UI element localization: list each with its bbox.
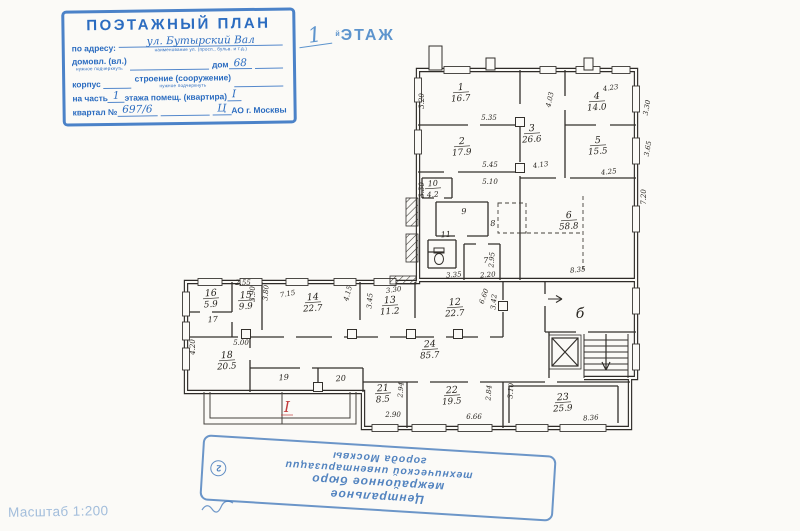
dimension-5.00: 5.00 bbox=[233, 339, 249, 347]
toilet-icon bbox=[434, 248, 444, 265]
dashed-lines bbox=[498, 196, 583, 272]
dimension-3.30: 3.30 bbox=[385, 285, 402, 295]
dimension-3.65: 3.65 bbox=[643, 140, 654, 157]
room-area-18: 20.5 bbox=[216, 361, 238, 372]
room-number-6: 6 bbox=[565, 210, 572, 221]
stamp-kvartal-row: квартал № 697/6 Ц АО г. Москвы bbox=[73, 103, 287, 117]
stamp-address-row: по адресу: ул. Бутырский Вал наименовани… bbox=[72, 34, 286, 54]
scale-note: Масштаб 1:200 bbox=[8, 503, 109, 520]
elevator-shaft bbox=[549, 335, 581, 369]
room-number-9: 9 bbox=[461, 207, 467, 216]
household-blank bbox=[130, 60, 209, 71]
stroenie-subcaption: нужное подчеркнуть bbox=[159, 82, 206, 88]
ink-squiggle bbox=[198, 498, 238, 516]
dimension-6.60: 6.60 bbox=[478, 287, 491, 305]
room-area-16: 5.9 bbox=[204, 300, 219, 311]
room-number-4: 4 bbox=[592, 91, 600, 102]
kvartal-value: 697/6 bbox=[117, 105, 157, 117]
stamp-house-row: домовл. (вл.) нужное подчеркнуть дом 68 bbox=[72, 53, 286, 71]
korpus-label: корпус bbox=[72, 79, 101, 89]
room-area-21: 8.5 bbox=[376, 395, 391, 406]
dimension-7.20: 7.20 bbox=[640, 189, 648, 205]
dimension-3.90: 3.90 bbox=[249, 286, 257, 302]
wall-posts bbox=[242, 118, 525, 392]
dimension-5.35: 5.35 bbox=[481, 114, 497, 122]
scanned-floor-plan-page: { "header_stamp": { "title": "ПОЭТАЖНЫЙ … bbox=[0, 0, 800, 531]
room-area-13: 11.2 bbox=[380, 306, 401, 317]
floor-part-value: 1 bbox=[108, 91, 125, 103]
floor-title: 1 й ЭТАЖ bbox=[298, 26, 395, 46]
kvartal-label: квартал № bbox=[73, 107, 118, 118]
room-area-1: 16.7 bbox=[451, 93, 472, 104]
stamp-border: ПОЭТАЖНЫЙ ПЛАН по адресу: ул. Бутырский … bbox=[61, 7, 297, 126]
room-area-6: 58.8 bbox=[559, 221, 580, 232]
room-number-5: 5 bbox=[594, 135, 601, 146]
dimension-2.90: 2.90 bbox=[384, 411, 401, 419]
room-area-23: 25.9 bbox=[552, 403, 574, 414]
floor-word: ЭТАЖ bbox=[341, 27, 395, 45]
room-number-16: 16 bbox=[204, 288, 217, 300]
room-area-3: 26.6 bbox=[521, 134, 543, 145]
apartment-label: этажа помещ. (квартира) bbox=[125, 91, 228, 102]
floor-number-handwritten: 1 bbox=[297, 24, 333, 48]
house-blank bbox=[255, 59, 283, 69]
house-number-value: 68 bbox=[229, 58, 253, 70]
dimension-4.25: 4.25 bbox=[600, 167, 618, 177]
room-area-2: 17.9 bbox=[452, 147, 473, 158]
part-label: на часть bbox=[72, 93, 108, 103]
room-number-2: 2 bbox=[457, 136, 465, 147]
dimension-3.10: 3.10 bbox=[506, 382, 515, 399]
dimension-8.36: 8.36 bbox=[583, 413, 600, 422]
dimension-4.20: 4.20 bbox=[189, 339, 197, 356]
zone-label-б: б bbox=[576, 306, 585, 322]
room-number-10: 10 bbox=[427, 179, 438, 189]
room-area-15: 9.9 bbox=[239, 302, 254, 313]
dimension-2.84: 2.84 bbox=[484, 385, 493, 402]
dimension-3.42: 3.42 bbox=[489, 293, 498, 310]
room-area-14: 22.7 bbox=[302, 303, 324, 314]
staircase bbox=[584, 334, 628, 378]
direction-arrow bbox=[548, 296, 562, 303]
stamp-title: ПОЭТАЖНЫЙ ПЛАН bbox=[71, 15, 285, 35]
stamp-part-row: на часть 1 этажа помещ. (квартира) I bbox=[72, 89, 286, 103]
room-number-13: 13 bbox=[383, 295, 396, 307]
address-label: по адресу: bbox=[72, 43, 116, 54]
room-number-1: 1 bbox=[457, 82, 464, 93]
dimension-5.10: 5.10 bbox=[482, 178, 498, 186]
dimension-4.13: 4.13 bbox=[531, 160, 549, 170]
dimension-3.20: 3.20 bbox=[418, 93, 426, 109]
dimension-4.23: 4.23 bbox=[601, 83, 619, 93]
dimension-4.03: 4.03 bbox=[544, 91, 555, 109]
dimension-2.20: 2.20 bbox=[479, 270, 497, 279]
dimension-3.80: 3.80 bbox=[261, 284, 270, 301]
room-number-8: 8 bbox=[490, 219, 496, 228]
bureau-stamp-number: 2 bbox=[210, 460, 227, 477]
room-area-10: 4.2 bbox=[426, 190, 440, 200]
dimension-2.55: 2.55 bbox=[234, 279, 251, 287]
section-mark-I: I bbox=[283, 398, 291, 416]
dimension-2.95: 2.95 bbox=[487, 251, 496, 269]
stroenie-blank bbox=[234, 76, 283, 87]
apartment-value: I bbox=[227, 89, 241, 101]
room-area-22: 19.5 bbox=[442, 396, 463, 407]
room-area-5: 15.5 bbox=[588, 146, 609, 157]
room-number-17: 17 bbox=[207, 315, 219, 325]
korpus-blank bbox=[104, 79, 132, 89]
room-number-14: 14 bbox=[306, 292, 319, 304]
dimension-3.30: 3.30 bbox=[418, 182, 426, 198]
dimension-6.66: 6.66 bbox=[466, 413, 482, 421]
dimension-8.35: 8.35 bbox=[570, 265, 587, 275]
stamp-building-row: корпус строение (сооружение) нужное подч… bbox=[72, 71, 286, 89]
dimension-4.15: 4.15 bbox=[342, 284, 354, 303]
kvartal-blank bbox=[160, 105, 209, 116]
floor-suffix: й bbox=[335, 31, 339, 38]
address-subcaption: наименование ул. (просп., бульв. и т.д.) bbox=[119, 46, 283, 54]
room-number-12: 12 bbox=[448, 297, 461, 309]
dimension-5.45: 5.45 bbox=[482, 161, 498, 169]
room-number-3: 3 bbox=[528, 123, 535, 134]
hatched-sections bbox=[390, 198, 418, 284]
dimension-3.30: 3.30 bbox=[642, 99, 653, 116]
dimension-3.35: 3.35 bbox=[446, 270, 463, 279]
room-area-4: 14.0 bbox=[587, 102, 608, 113]
dimension-3.45: 3.45 bbox=[365, 292, 374, 309]
okrug-label: АО г. Москвы bbox=[231, 104, 286, 115]
house-label: дом bbox=[212, 59, 229, 69]
room-area-12: 22.7 bbox=[444, 308, 466, 319]
stroenie-label: строение (сооружение) bbox=[135, 72, 232, 83]
room-number-11: 11 bbox=[440, 230, 451, 240]
dimension-7.15: 7.15 bbox=[279, 289, 296, 300]
room-number-18: 18 bbox=[220, 350, 233, 362]
dimension-2.94: 2.94 bbox=[396, 382, 405, 399]
room-area-24: 85.7 bbox=[420, 350, 441, 361]
household-subcaption: нужное подчеркнуть bbox=[76, 66, 123, 72]
entrance-porch bbox=[204, 392, 356, 424]
room-number-19: 19 bbox=[278, 373, 289, 383]
okrug-value: Ц bbox=[212, 104, 231, 116]
room-number-20: 20 bbox=[334, 374, 346, 384]
bti-header-stamp: ПОЭТАЖНЫЙ ПЛАН по адресу: ул. Бутырский … bbox=[61, 7, 297, 126]
